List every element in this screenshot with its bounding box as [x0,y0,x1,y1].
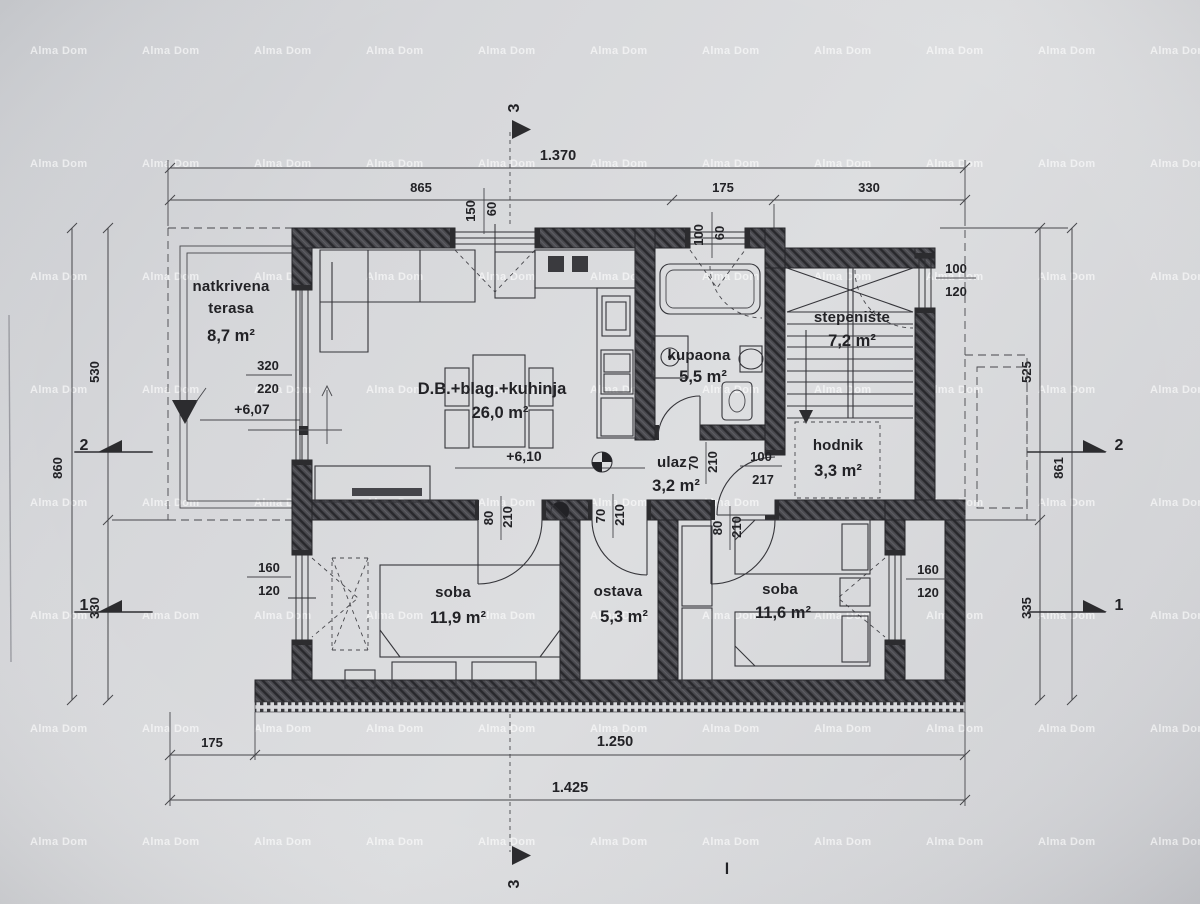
watermark-text: Alma Dom [478,723,536,735]
bedroom1-door-h: 210 [500,506,515,528]
room-area-storage: 5,3 m² [600,608,648,626]
storage-door-w: 70 [593,509,608,523]
watermark-text: Alma Dom [1150,836,1200,848]
tv [352,488,422,496]
watermark-text: Alma Dom [1038,836,1096,848]
storage-door-h: 210 [612,504,627,526]
watermark-text: Alma Dom [1038,497,1096,509]
room-label-terrace-1: natkrivena [192,278,269,295]
stair-window-w: 100 [945,261,967,276]
bedroom2-door-h: 210 [729,516,744,538]
terrace-door-w: 320 [257,358,279,373]
watermark-text: Alma Dom [590,45,648,57]
watermark-text: Alma Dom [702,45,760,57]
watermark-text: Alma Dom [926,836,984,848]
watermark-text: Alma Dom [30,723,88,735]
dim-top-seg3: 330 [858,180,880,195]
watermark-text: Alma Dom [1038,384,1096,396]
watermark-text: Alma Dom [478,610,536,622]
dim-left-seg2: 330 [87,597,102,619]
watermark-text: Alma Dom [30,836,88,848]
dim-top-seg1: 865 [410,180,432,195]
room-label-bedroom1: soba [435,584,471,601]
watermark-text: Alma Dom [254,723,312,735]
watermark-text: Alma Dom [1150,158,1200,170]
living-window-w: 150 [463,200,478,222]
living-window-h: 60 [484,202,499,216]
watermark-text: Alma Dom [142,836,200,848]
watermark-text: Alma Dom [30,497,88,509]
watermark-text: Alma Dom [1038,271,1096,283]
dim-left-total: 860 [50,457,65,479]
watermark-text: Alma Dom [926,723,984,735]
bedroom2-window-h: 120 [917,585,939,600]
watermark-text: Alma Dom [1150,271,1200,283]
watermark-text: Alma Dom [366,723,424,735]
bath-door-h: 210 [705,451,720,473]
room-area-bathroom: 5,5 m² [679,368,727,386]
room-label-storage: ostava [594,583,643,600]
watermark-text: Alma Dom [814,45,872,57]
watermark-text: Alma Dom [1150,497,1200,509]
dim-bottom-seg1: 175 [201,735,223,750]
watermark-text: Alma Dom [1038,158,1096,170]
section-1-left: 1 [80,597,89,614]
floor-plan-drawing: Alma DomAlma DomAlma DomAlma DomAlma Dom… [0,0,1200,904]
watermark-text: Alma Dom [254,610,312,622]
bedroom1-window-w: 160 [258,560,280,575]
dim-top-total: 1.370 [540,148,576,164]
scanned-floor-plan: Alma DomAlma DomAlma DomAlma DomAlma Dom… [0,0,1200,904]
dim-right-seg2: 335 [1019,597,1034,619]
room-area-entry: 3,2 m² [652,477,700,495]
watermark-text: Alma Dom [926,45,984,57]
watermark-text: Alma Dom [366,271,424,283]
dim-right-total: 861 [1051,457,1066,479]
stair-window-h: 120 [945,284,967,299]
dim-top-seg2: 175 [712,180,734,195]
watermark-text: Alma Dom [1150,45,1200,57]
entry-door-w: 100 [750,449,772,464]
watermark-text: Alma Dom [1038,45,1096,57]
room-area-hallway: 3,3 m² [814,462,862,480]
watermark-text: Alma Dom [366,45,424,57]
room-label-living: D.B.+blag.+kuhinja [418,380,567,398]
watermark-text: Alma Dom [366,610,424,622]
watermark-text: Alma Dom [366,836,424,848]
watermark-text: Alma Dom [1150,610,1200,622]
dim-right-seg1: 525 [1019,361,1034,383]
watermark-text: Alma Dom [590,836,648,848]
room-area-living: 26,0 m² [472,404,529,422]
watermark-text: Alma Dom [814,723,872,735]
watermark-text: Alma Dom [1038,723,1096,735]
watermark-text: Alma Dom [254,45,312,57]
bedroom1-door-w: 80 [481,511,496,525]
watermark-text: Alma Dom [702,836,760,848]
watermark-text: Alma Dom [478,836,536,848]
bedroom2-window-w: 160 [917,562,939,577]
footer-mark: l [725,861,729,878]
watermark-text: Alma Dom [142,271,200,283]
level-interior: +6,10 [506,448,542,464]
room-label-staircase: stepenište [814,309,890,326]
watermark-text: Alma Dom [702,723,760,735]
watermark-text: Alma Dom [814,271,872,283]
room-area-bedroom1: 11,9 m² [430,609,486,627]
watermark-text: Alma Dom [814,836,872,848]
watermark-text: Alma Dom [30,158,88,170]
room-area-bedroom2: 11,6 m² [755,604,811,622]
watermark-text: Alma Dom [1150,723,1200,735]
watermark-text: Alma Dom [1150,384,1200,396]
watermark-text: Alma Dom [366,384,424,396]
watermark-text: Alma Dom [142,45,200,57]
watermark-text: Alma Dom [254,836,312,848]
dim-bottom-seg2: 1.250 [597,734,633,750]
dim-bottom-total: 1.425 [552,780,588,796]
terrace-door-h: 220 [257,381,279,396]
section-2-right: 2 [1115,437,1124,454]
watermark-text: Alma Dom [478,271,536,283]
watermark-text: Alma Dom [478,45,536,57]
watermark-text: Alma Dom [30,271,88,283]
watermark-text: Alma Dom [702,271,760,283]
room-label-terrace-2: terasa [208,300,254,317]
room-label-entry: ulaz [657,454,687,471]
watermark-text: Alma Dom [30,45,88,57]
entry-door-h: 217 [752,472,774,487]
bath-window-h: 60 [712,226,727,240]
room-area-staircase: 7,2 m² [828,332,876,350]
level-terrace: +6,07 [234,401,270,417]
room-label-hallway: hodnik [813,437,864,454]
section-1-right: 1 [1115,597,1124,614]
bedroom1-window-h: 120 [258,583,280,598]
bedroom2-door-w: 80 [710,521,725,535]
section-3-top: 3 [506,103,523,112]
room-label-bathroom: kupaona [667,347,731,364]
watermark-text: Alma Dom [142,497,200,509]
bath-door-w: 70 [686,456,701,470]
section-3-bottom: 3 [506,879,523,888]
room-area-terrace: 8,7 m² [207,327,255,345]
section-2-left: 2 [80,437,89,454]
watermark-text: Alma Dom [142,384,200,396]
dim-left-seg1: 530 [87,361,102,383]
room-label-bedroom2: soba [762,581,798,598]
bath-window-w: 100 [691,224,706,246]
watermark-text: Alma Dom [142,723,200,735]
watermark-text: Alma Dom [30,384,88,396]
